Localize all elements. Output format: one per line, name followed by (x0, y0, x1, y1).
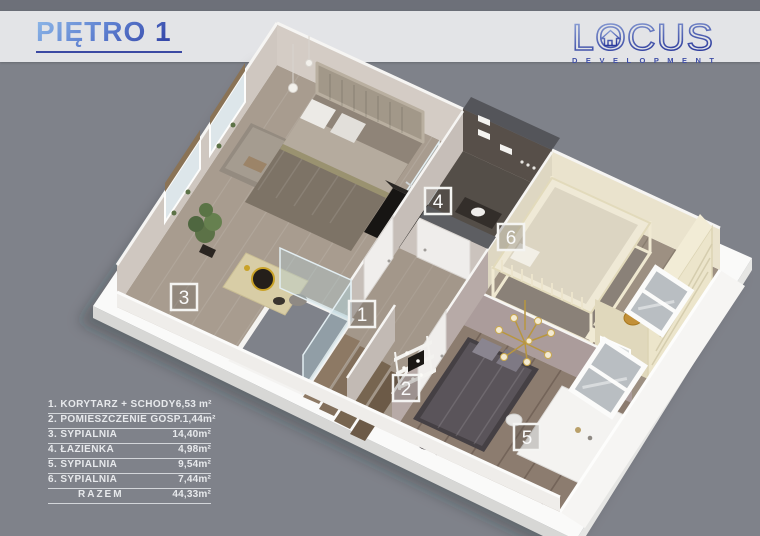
legend-label: 3. SYPIALNIA (48, 430, 117, 440)
svg-text:6: 6 (506, 228, 517, 249)
legend-total-label: RAZEM (48, 490, 124, 500)
legend-row: 6. SYPIALNIA 7,44m² (48, 475, 211, 489)
legend-label: 2. POMIESZCZENIE GOSP. (48, 415, 183, 425)
legend-row: 3. SYPIALNIA 14,40m² (48, 430, 211, 444)
svg-text:2: 2 (401, 379, 412, 400)
svg-text:3: 3 (179, 288, 190, 309)
svg-text:1: 1 (357, 305, 368, 326)
legend-row: 4. ŁAZIENKA 4,98m² (48, 445, 211, 459)
svg-text:4: 4 (433, 192, 444, 213)
legend-area: 9,54m² (178, 460, 211, 470)
legend-label: 5. SYPIALNIA (48, 460, 117, 470)
legend-row: 2. POMIESZCZENIE GOSP. 1,44m² (48, 415, 211, 429)
legend: 1. KORYTARZ + SCHODY 6,53 m² 2. POMIESZC… (48, 400, 211, 505)
marker-6: 6 (498, 224, 524, 250)
svg-text:5: 5 (522, 428, 533, 449)
legend-area: 4,98m² (178, 445, 211, 455)
legend-area: 7,44m² (178, 475, 211, 485)
legend-label: 4. ŁAZIENKA (48, 445, 114, 455)
marker-4: 4 (425, 188, 451, 214)
marker-1: 1 (349, 301, 375, 327)
legend-row: 1. KORYTARZ + SCHODY 6,53 m² (48, 400, 211, 414)
washbasin (471, 208, 485, 217)
legend-area: 6,53 m² (176, 400, 212, 410)
page: { "page": {"background":"#7f828a","top_s… (0, 0, 760, 536)
legend-area: 1,44m² (183, 415, 216, 425)
plant (199, 203, 213, 217)
legend-label: 6. SYPIALNIA (48, 475, 117, 485)
pendant-light (289, 84, 298, 93)
marker-2: 2 (393, 375, 419, 401)
legend-row: 5. SYPIALNIA 9,54m² (48, 460, 211, 474)
legend-label: 1. KORYTARZ + SCHODY (48, 400, 176, 410)
marker-5: 5 (514, 424, 540, 450)
legend-area: 14,40m² (172, 430, 211, 440)
marker-3: 3 (171, 284, 197, 310)
pendant-light (306, 60, 313, 67)
legend-total-area: 44,33m² (172, 490, 211, 500)
vanity-mirror (252, 268, 274, 290)
legend-total-row: RAZEM 44,33m² (48, 490, 211, 504)
